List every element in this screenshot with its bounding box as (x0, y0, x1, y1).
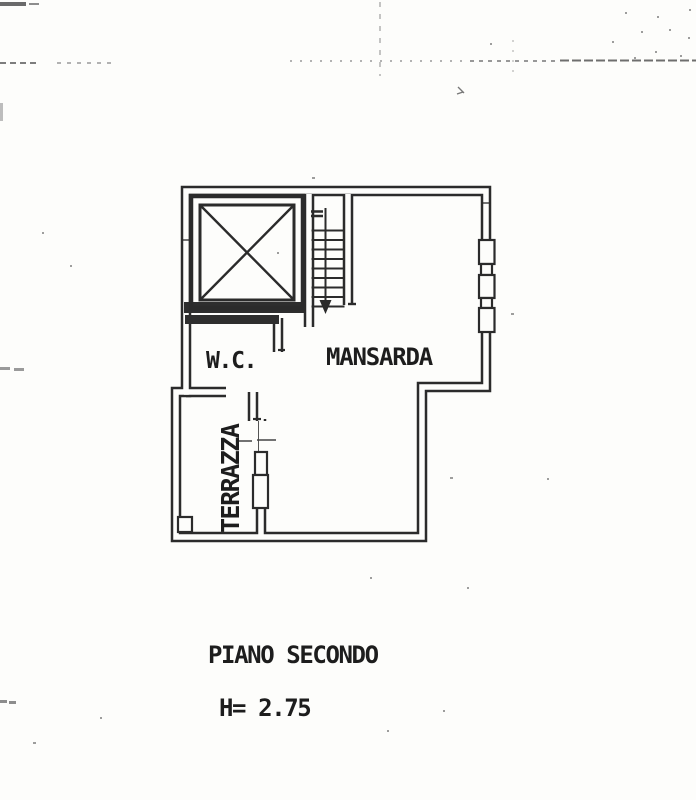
elevator-shaft (191, 196, 303, 308)
terrace-pillar (178, 517, 192, 532)
window-mullion (481, 264, 492, 275)
caption-height: H= 2.75 (219, 694, 310, 722)
window-mullion (481, 298, 492, 308)
stair-treads (312, 231, 345, 307)
shaft-cross-icon (200, 205, 294, 300)
west-wall-windows (253, 452, 268, 508)
window (479, 275, 495, 298)
staircase (311, 208, 345, 314)
floorplan-drawing: W.C. MANSARDA TERRAZZA PIANO SECONDO H= … (0, 0, 696, 800)
room-label-terrazza: TERRAZZA (216, 423, 245, 533)
window (253, 475, 268, 508)
window (479, 240, 495, 264)
wc-top-wall (185, 315, 279, 324)
scanned-floorplan-page: W.C. MANSARDA TERRAZZA PIANO SECONDO H= … (0, 0, 696, 800)
scan-artifacts (0, 2, 696, 744)
caption-floor: PIANO SECONDO (208, 641, 379, 669)
room-label-wc: W.C. (206, 348, 256, 374)
caption: PIANO SECONDO H= 2.75 (208, 641, 379, 722)
window (255, 452, 267, 475)
room-label-mansarda: MANSARDA (326, 343, 434, 371)
window (479, 308, 495, 332)
right-wall-windows (479, 240, 495, 332)
